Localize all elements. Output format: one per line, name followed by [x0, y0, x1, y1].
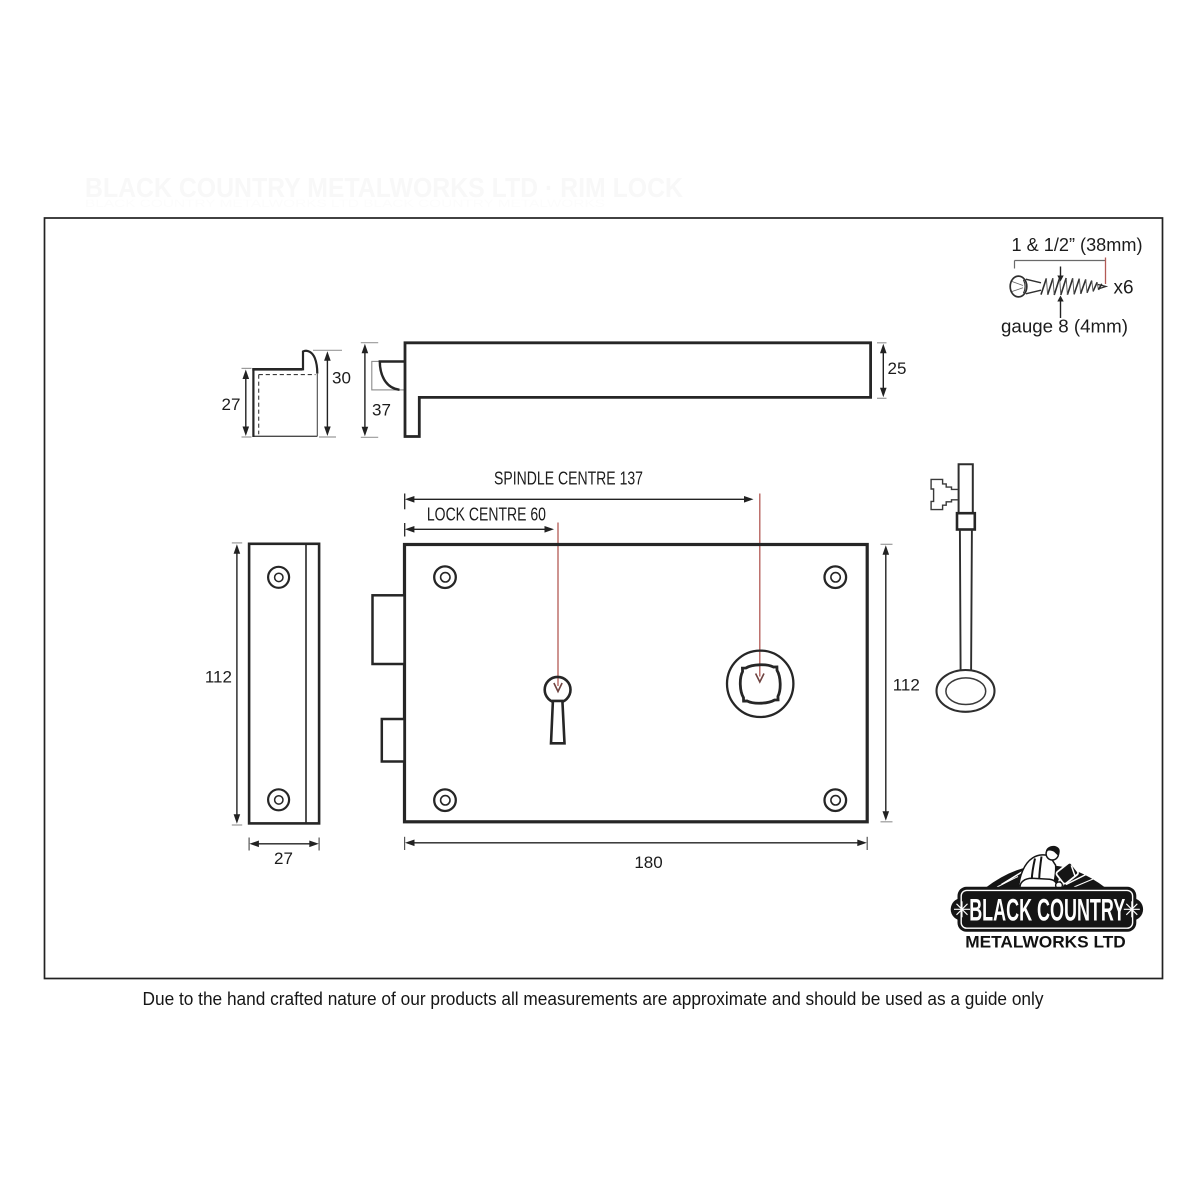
svg-text:x6: x6: [1114, 278, 1134, 299]
svg-text:METALWORKS LTD: METALWORKS LTD: [965, 934, 1126, 952]
svg-text:1 & 1/2” (38mm): 1 & 1/2” (38mm): [1012, 234, 1143, 255]
svg-text:SPINDLE CENTRE 137: SPINDLE CENTRE 137: [494, 468, 643, 488]
svg-text:BLACK COUNTRY: BLACK COUNTRY: [969, 892, 1125, 928]
svg-text:27: 27: [274, 849, 293, 868]
svg-text:30: 30: [332, 369, 351, 388]
svg-text:180: 180: [634, 853, 662, 872]
svg-text:112: 112: [893, 675, 920, 694]
svg-text:gauge 8 (4mm): gauge 8 (4mm): [1001, 316, 1128, 337]
svg-text:25: 25: [888, 359, 907, 378]
svg-text:LOCK CENTRE 60: LOCK CENTRE 60: [427, 504, 546, 524]
svg-text:BLACK COUNTRY METALWORKS LTD B: BLACK COUNTRY METALWORKS LTD BLACK COUNT…: [85, 198, 605, 210]
svg-text:112: 112: [205, 667, 232, 686]
svg-text:Due to the hand crafted nature: Due to the hand crafted nature of our pr…: [143, 989, 1044, 1009]
svg-text:27: 27: [222, 395, 241, 414]
svg-text:37: 37: [372, 401, 391, 420]
